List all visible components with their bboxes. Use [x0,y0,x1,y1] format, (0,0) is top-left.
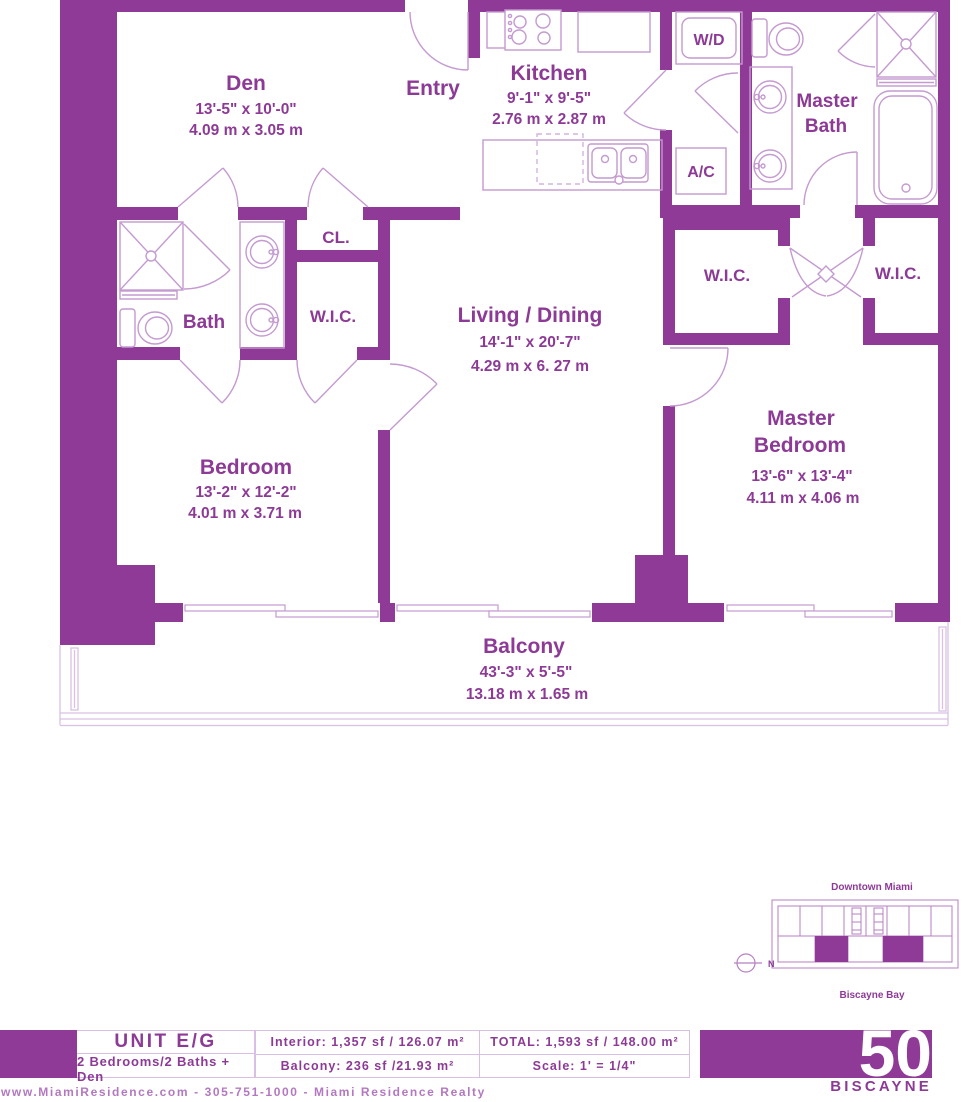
entry-label: Entry [406,77,460,100]
wall-slider-post [380,603,395,622]
bath-label: Bath [183,312,225,333]
logo-name: BISCAYNE [700,1078,932,1095]
den-dims-ft: 13'-5" x 10'-0" [195,101,296,118]
ac-label: A/C [687,164,715,181]
sink [754,81,786,113]
wall-wicR-left-a [863,218,875,246]
unit-info-table: UNIT E/G 2 Bedrooms/2 Baths + Den Interi… [77,1030,690,1078]
key-plan: Downtown Miami N Biscayne Ba [726,876,964,1002]
plan-scale: Scale: 1' = 1/4" [480,1055,689,1078]
toilet [752,19,803,57]
wall-mbath-bottom-b [855,205,950,218]
logo-block: 50 [700,1030,932,1078]
room-labels: Den 13'-5" x 10'-0" 4.09 m x 3.05 m Entr… [183,32,921,703]
balcony-dims-ft: 43'-3" x 5'-5" [480,664,573,681]
balcony-area: Balcony: 236 sf /21.93 m² [256,1055,479,1078]
total-area: TOTAL: 1,593 sf / 148.00 m² [480,1031,689,1055]
closet-hall-door [695,73,738,133]
wall-wicC-right-a [778,218,790,246]
master-bath-label-1: Master [796,91,858,112]
living-dims-ft: 14'-1" x 20'-7" [479,334,580,351]
keyplan-building [772,900,958,968]
wall-mbath-bottom-a [660,205,800,218]
bedroom-dims-m: 4.01 m x 3.71 m [188,505,302,522]
wall-den-a [117,207,178,220]
bedroom-label: Bedroom [200,456,292,479]
cl-label: CL. [322,228,349,247]
footer-website: www.MiamiResidence.com - 305-751-1000 - … [1,1085,486,1099]
wall-wicC-top [663,218,790,230]
wall-left-band [60,0,183,645]
master-slider [805,611,892,617]
sink [246,304,279,336]
sink [246,236,279,268]
wall-top-left [60,0,405,12]
bath-shower-door [184,224,230,289]
unit-config: 2 Bedrooms/2 Baths + Den [77,1054,254,1084]
wall-wicC-bottom [663,333,790,345]
unit-column: UNIT E/G 2 Bedrooms/2 Baths + Den [77,1031,255,1077]
keyplan-unit-highlight [883,936,923,962]
wall-wicR-left-b [863,298,875,338]
keyplan-core [852,908,883,934]
master-slider [727,605,814,611]
bedroom-dims-ft: 13'-2" x 12'-2" [195,484,296,501]
living-slider [397,605,498,611]
wic-left-label: W.I.C. [310,307,356,326]
bathtub [874,91,937,204]
wall-bath-bottom-b [240,347,297,360]
den-door-right [308,168,368,207]
kitchen-label: Kitchen [510,62,587,85]
den-label: Den [226,72,266,95]
wall-bedroom-living [378,430,390,603]
master-bedroom-dims-ft: 13'-6" x 13'-4" [751,468,852,485]
keyplan-bottom-label: Biscayne Bay [839,990,904,1001]
sink [754,150,786,182]
balcony-dims-m: 13.18 m x 1.65 m [466,686,588,703]
info-bar: UNIT E/G 2 Bedrooms/2 Baths + Den Interi… [0,1030,964,1078]
dishwasher-dashed [537,134,583,184]
kitchen-dims-m: 2.76 m x 2.87 m [492,111,606,128]
wall-den-c [363,207,460,220]
living-label: Living / Dining [458,304,603,327]
wall-t-column [592,555,724,622]
master-bedroom-label-2: Bedroom [754,434,846,457]
bedroom-slider [276,611,378,617]
wall-bath-bottom-c [357,347,390,360]
info-bar-accent-block [0,1030,77,1078]
wall-wicR-bottom [863,333,950,345]
keyplan-unit-highlight [815,936,848,962]
interior-area: Interior: 1,357 sf / 126.07 m² [256,1031,479,1055]
master-bath-label-2: Bath [805,116,847,137]
total-column: TOTAL: 1,593 sf / 148.00 m² Scale: 1' = … [480,1031,690,1077]
bath-exit-door-left [180,360,240,403]
bath-exit-door-right [297,360,357,403]
wall-living-mbr-b [663,406,675,555]
sliding-doors [185,605,892,617]
compass [734,954,762,972]
wic-right-label: W.I.C. [875,264,921,283]
keyplan-top-label: Downtown Miami [831,882,913,893]
wall-right [895,0,950,622]
kitchen-door [624,70,666,130]
kitchen-sink [588,144,648,184]
master-bath-door [804,152,857,205]
toilet [120,309,172,347]
wic-double-doors [790,248,863,297]
wall-cl-bottom [297,250,390,262]
den-dims-m: 4.09 m x 3.05 m [189,122,303,139]
kitchen-counter [578,12,650,52]
wd-label: W/D [693,32,724,49]
balcony-label: Balcony [483,635,565,658]
wic-center-label: W.I.C. [704,266,750,285]
living-slider [489,611,590,617]
unit-name: UNIT E/G [77,1031,254,1054]
logo-number: 50 [859,1020,932,1086]
shower [120,222,183,299]
compass-n-label: N [768,959,775,969]
master-shower-door [838,14,875,67]
wall-wic-right [378,218,390,360]
wall-living-mbr-a [663,218,675,345]
wall-bath-bottom-a [117,347,180,360]
living-dims-m: 4.29 m x 6. 27 m [471,358,589,375]
wall-bath-wic-divider [285,218,297,360]
bedroom-slider [185,605,285,611]
floor-plan: Den 13'-5" x 10'-0" 4.09 m x 3.05 m Entr… [0,0,964,760]
wall-kitchen-right-a [660,0,672,70]
master-bedroom-dims-m: 4.11 m x 4.06 m [747,490,860,507]
area-column: Interior: 1,357 sf / 126.07 m² Balcony: … [255,1031,480,1077]
master-bedroom-door [670,348,728,406]
shower [877,12,936,86]
kitchen-dims-ft: 9'-1" x 9'-5" [507,90,591,107]
floorplan-page: Den 13'-5" x 10'-0" 4.09 m x 3.05 m Entr… [0,0,964,1102]
entry-door [410,12,468,70]
bedroom-door [390,364,437,430]
stove [505,10,561,50]
fixtures [120,10,937,348]
den-door-left [178,168,238,207]
master-bedroom-label-1: Master [767,407,835,430]
